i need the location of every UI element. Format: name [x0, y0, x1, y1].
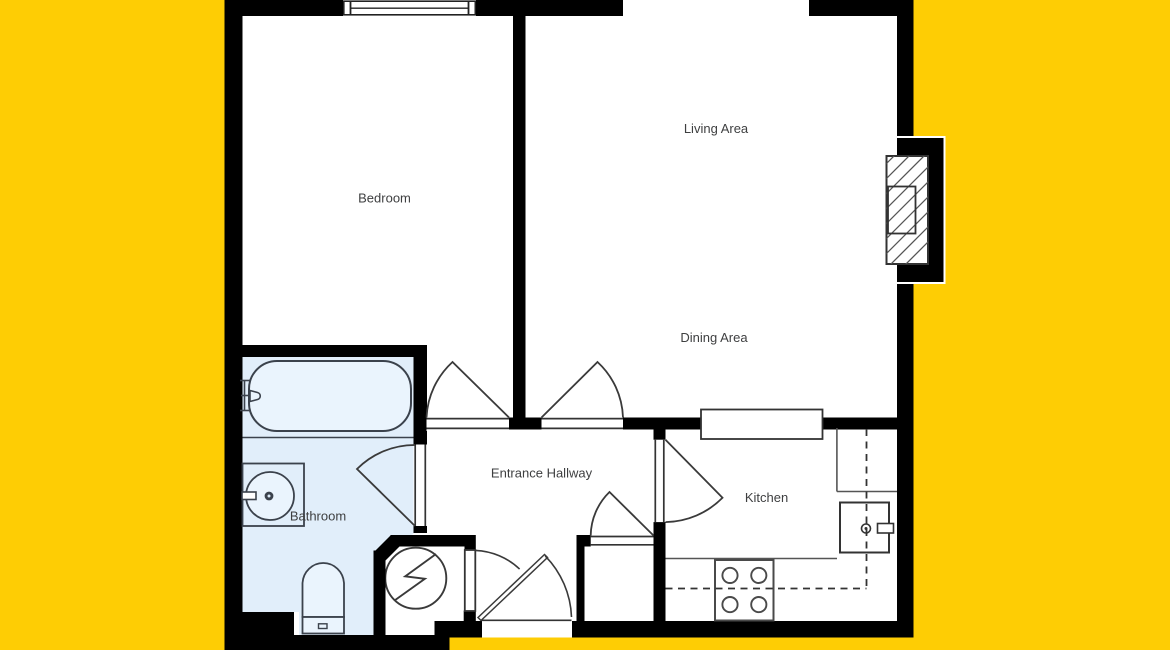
- svg-text:Entrance Hallway: Entrance Hallway: [491, 466, 593, 481]
- svg-text:Living Area: Living Area: [684, 121, 749, 136]
- svg-text:Bathroom: Bathroom: [290, 509, 346, 524]
- svg-text:Bedroom: Bedroom: [358, 191, 411, 206]
- svg-text:Dining Area: Dining Area: [680, 330, 748, 345]
- svg-text:Kitchen: Kitchen: [745, 490, 788, 505]
